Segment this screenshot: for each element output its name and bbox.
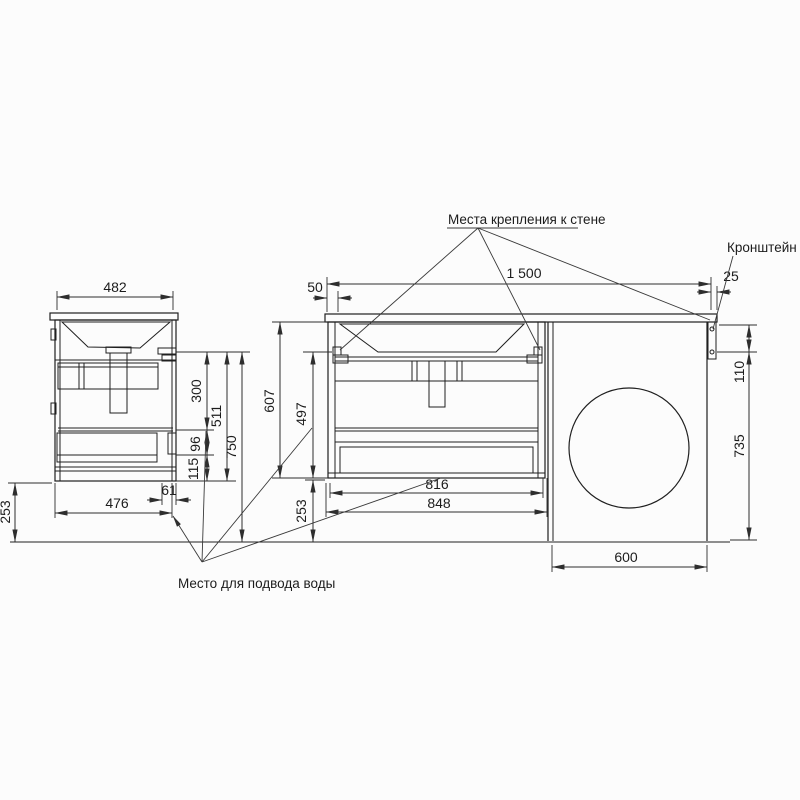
countertop — [325, 314, 717, 322]
wall-mount-label: Места крепления к стене — [448, 212, 606, 227]
wall-bracket — [708, 322, 716, 359]
dim-600-text: 600 — [614, 549, 638, 565]
dim-482-text: 482 — [103, 279, 127, 295]
wall-bracket-hole-bottom — [710, 350, 714, 354]
dim-25: 25 — [697, 268, 739, 310]
side-countertop — [50, 313, 178, 320]
side-drain-pipe — [110, 353, 127, 413]
side-lower-drawer — [57, 433, 157, 462]
dim-1500: 1 500 — [327, 265, 711, 312]
side-sink-basin — [62, 322, 170, 348]
dim-735-text: 735 — [731, 434, 747, 458]
dim-253-front-text: 253 — [293, 499, 309, 523]
technical-drawing: 482 300 96 115 511 750 61 476 253 — [0, 0, 800, 800]
front-mount-left-a — [333, 347, 341, 355]
dim-110-text: 110 — [731, 361, 747, 384]
dim-50-text: 50 — [307, 279, 323, 295]
front-drawer-inner — [340, 447, 533, 473]
dim-61: 61 — [147, 482, 191, 505]
washer-drum-circle — [569, 388, 689, 508]
dim-848-text: 848 — [427, 495, 451, 511]
dim-61-text: 61 — [161, 482, 177, 498]
bracket-label: Кронштейн — [727, 240, 797, 255]
dim-497: 497 — [293, 352, 332, 478]
dim-96-text: 96 — [187, 436, 203, 452]
front-body — [328, 322, 545, 478]
dim-253-left-text: 253 — [0, 500, 13, 524]
wall-mount-leader-lines — [340, 228, 710, 350]
side-view — [50, 313, 178, 481]
dim-482: 482 — [57, 279, 173, 310]
dim-115-text: 115 — [185, 458, 201, 481]
water-supply-label: Место для подвода воды — [178, 576, 335, 591]
dim-600: 600 — [552, 545, 707, 572]
dim-110: 110 — [717, 325, 757, 383]
dim-750: 750 — [223, 352, 242, 542]
front-sink-basin — [340, 324, 524, 352]
dim-607: 607 — [261, 322, 328, 478]
front-drain-pipe — [429, 361, 445, 407]
dim-607-text: 607 — [261, 389, 277, 413]
callout-wall-mount: Места крепления к стене — [340, 212, 710, 350]
side-mount-bracket-1 — [158, 348, 176, 354]
front-mount-right-b — [527, 355, 542, 363]
dim-476-text: 476 — [105, 495, 129, 511]
dim-253-left: 253 — [0, 483, 52, 542]
callout-bracket: Кронштейн — [713, 240, 797, 329]
washer-bay — [548, 322, 716, 541]
dim-816-text: 816 — [425, 476, 449, 492]
dim-300-text: 300 — [188, 379, 204, 403]
dim-511: 511 — [208, 352, 227, 481]
dim-1500-text: 1 500 — [506, 265, 541, 281]
side-body — [55, 320, 176, 481]
dim-253-front: 253 — [293, 480, 325, 542]
drawing-page: 482 300 96 115 511 750 61 476 253 — [0, 0, 800, 800]
dim-750-text: 750 — [223, 435, 239, 459]
dim-497-text: 497 — [293, 402, 309, 426]
dim-511-text: 511 — [208, 405, 224, 428]
